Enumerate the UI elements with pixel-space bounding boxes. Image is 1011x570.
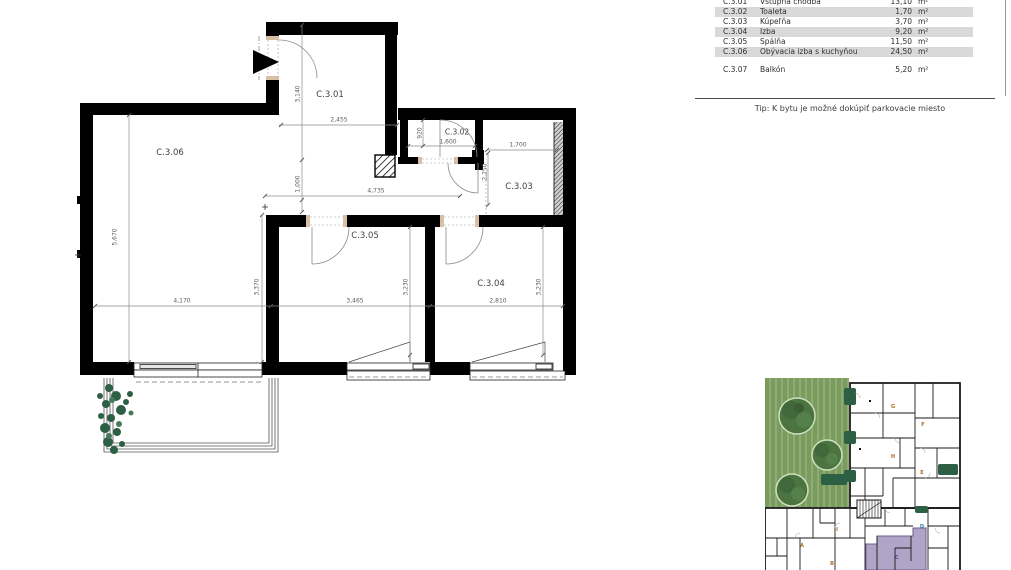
- room-unit: m²: [912, 65, 942, 75]
- unit-label-e: E: [920, 470, 923, 476]
- dim-c301-width: 2,455: [330, 117, 347, 124]
- dim-c302-height: 920: [417, 127, 424, 138]
- room-area: 5,20: [870, 65, 912, 75]
- dimension-ticks: [93, 23, 565, 364]
- room-unit: m²: [912, 0, 942, 7]
- tree-icon: [812, 440, 842, 470]
- room-area: 11,50: [870, 37, 912, 47]
- room-unit: m²: [912, 47, 942, 57]
- dim-c303-height: 2,250: [482, 163, 489, 180]
- room-label-c304: C.3.04: [477, 279, 505, 289]
- room-unit: m²: [912, 27, 942, 37]
- stairwell: [857, 500, 881, 518]
- room-label-c302: C.3.02: [445, 128, 469, 137]
- legend-divider: [695, 98, 995, 99]
- frame-border: [1005, 0, 1006, 96]
- room-area: 9,20: [870, 27, 912, 37]
- dim-c301-opening: 1,000: [295, 175, 302, 192]
- tree-icon: [776, 474, 808, 506]
- window-swings: [349, 342, 545, 362]
- dim-c302-width: 1,600: [439, 139, 456, 146]
- room-legend-table: C.3.01 Vstupná chodba 13,10 m² C.3.02 To…: [715, 0, 973, 75]
- table-row-balcony: C.3.07 Balkón 5,20 m²: [715, 65, 973, 75]
- unit-label-a: A: [800, 543, 804, 549]
- room-name: Obývacia izba s kuchyňou: [760, 47, 870, 57]
- room-label-c301: C.3.01: [316, 90, 344, 100]
- room-code: C.3.02: [715, 7, 760, 17]
- door-arcs: [259, 36, 483, 264]
- dim-c304-width: 2,810: [489, 298, 506, 305]
- table-row: C.3.05 Spálňa 11,50 m²: [715, 37, 973, 47]
- dim-c304-height: 3,230: [536, 278, 543, 295]
- table-row: C.3.02 Toaleta 1,70 m²: [715, 7, 973, 17]
- room-name: Toaleta: [760, 7, 870, 17]
- table-row: C.3.01 Vstupná chodba 13,10 m²: [715, 0, 973, 7]
- balcony-plant: [97, 384, 134, 454]
- room-area: 24,50: [870, 47, 912, 57]
- survey-crosses: [75, 204, 268, 258]
- dim-c305-height: 3,230: [403, 278, 410, 295]
- site-plan-drawing: [765, 378, 962, 570]
- unit-label-b: B: [830, 561, 834, 567]
- tree-icon: [779, 398, 815, 434]
- walls: [77, 22, 576, 375]
- room-code: C.3.07: [715, 65, 760, 75]
- room-code: C.3.03: [715, 17, 760, 27]
- unit-label-i: I: [836, 527, 838, 533]
- tip-text: Tip: K bytu je možné dokúpiť parkovacie …: [700, 104, 1000, 113]
- room-label-c303: C.3.03: [505, 182, 533, 192]
- entrance-arrow-icon: [253, 50, 279, 74]
- dim-c306-width: 4,170: [173, 298, 190, 305]
- room-area: 3,70: [870, 17, 912, 27]
- room-name: Vstupná chodba: [760, 0, 870, 7]
- table-row: C.3.03 Kúpeľňa 3,70 m²: [715, 17, 973, 27]
- dim-c301-height: 3,140: [295, 85, 302, 102]
- room-code: C.3.05: [715, 37, 760, 47]
- table-row: C.3.06 Obývacia izba s kuchyňou 24,50 m²: [715, 47, 973, 57]
- room-label-c306: C.3.06: [156, 148, 184, 158]
- dimension-lines: [95, 25, 563, 362]
- room-name: Izba: [760, 27, 870, 37]
- dim-hallway-width: 4,735: [367, 188, 384, 195]
- dim-c306-height: 5,670: [112, 228, 119, 245]
- room-name: Spálňa: [760, 37, 870, 47]
- room-name: Balkón: [760, 65, 870, 75]
- room-unit: m²: [912, 7, 942, 17]
- room-area: 13,10: [870, 0, 912, 7]
- room-code: C.3.04: [715, 27, 760, 37]
- room-label-c305: C.3.05: [351, 231, 379, 241]
- floor-plan-drawing: [0, 0, 660, 480]
- dim-c305-width: 3,465: [346, 298, 363, 305]
- dim-c306-inner: 3,370: [254, 278, 261, 295]
- unit-label-h: H: [891, 454, 895, 460]
- room-unit: m²: [912, 17, 942, 27]
- room-code: C.3.01: [715, 0, 760, 7]
- room-name: Kúpeľňa: [760, 17, 870, 27]
- unit-label-d: D: [920, 524, 924, 530]
- dim-c303-width: 1,700: [509, 142, 526, 149]
- unit-label-g: G: [891, 404, 895, 410]
- room-area: 1,70: [870, 7, 912, 17]
- unit-label-f: F: [921, 422, 924, 428]
- windows: [134, 363, 565, 380]
- table-row: C.3.04 Izba 9,20 m²: [715, 27, 973, 37]
- room-code: C.3.06: [715, 47, 760, 57]
- apartment-floor-plan-page: { "legend": { "rows": [ {"code":"C.3.01"…: [0, 0, 1011, 570]
- room-unit: m²: [912, 37, 942, 47]
- unit-label-c: C: [895, 555, 899, 561]
